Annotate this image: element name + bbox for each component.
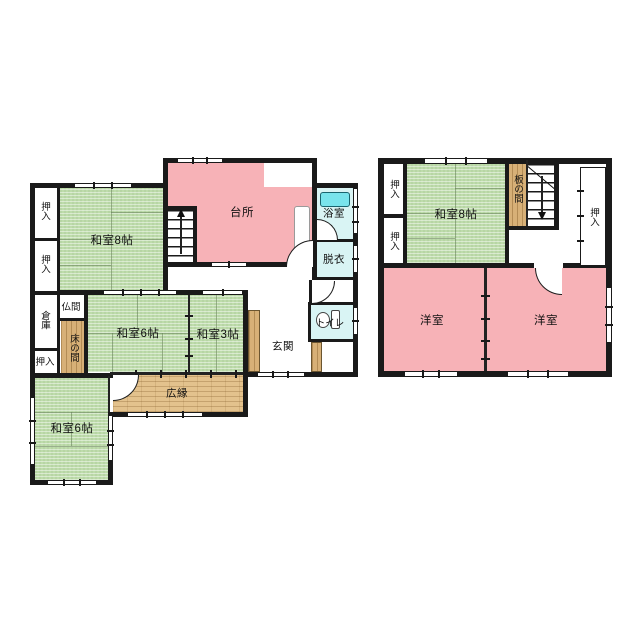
room-label-storage: 倉庫 — [37, 311, 51, 330]
room-label-western-right: 洋室 — [534, 312, 558, 328]
door-arc-washroom — [312, 281, 335, 304]
wall — [30, 291, 60, 295]
window-mark — [108, 416, 113, 460]
wall — [243, 290, 248, 417]
room-label-closet-2: 押入 — [37, 255, 51, 274]
window-mark — [405, 371, 457, 377]
wall — [163, 158, 168, 295]
window-mark — [508, 371, 568, 377]
kitchen-corner-nook — [264, 163, 312, 187]
room-label-washitsu6-center: 和室6帖 — [117, 325, 160, 341]
wall — [526, 160, 528, 226]
wall — [506, 226, 558, 230]
entrance-step-right — [311, 342, 322, 372]
wall — [554, 158, 559, 230]
wall — [57, 186, 60, 375]
window-mark — [75, 183, 131, 188]
floor-plan-canvas: 台所 浴室 脱衣 トイレ 玄関 和室8帖 和室6帖 和室3帖 和室6帖 広縁 仏… — [0, 0, 640, 640]
wall — [84, 293, 88, 375]
stairs-2f-arrow-line — [541, 176, 543, 212]
wall — [312, 183, 358, 188]
room-label-closet-3: 押入 — [35, 354, 54, 368]
room-label-closet-2f-2: 押入 — [386, 232, 400, 251]
window-mark — [606, 288, 612, 342]
wall — [308, 302, 311, 342]
wall — [30, 373, 113, 378]
room-label-closet-1: 押入 — [37, 202, 51, 221]
room-label-butsuma: 仏間 — [61, 299, 80, 313]
window-mark — [178, 158, 222, 163]
wall — [378, 263, 612, 268]
wall — [378, 158, 612, 164]
wall — [308, 339, 353, 342]
wall — [30, 238, 60, 241]
room-label-veranda: 広縁 — [166, 386, 188, 401]
wall — [58, 318, 85, 321]
stairs-1f-arrow-line — [180, 216, 182, 254]
room-label-closet-2f-3: 押入 — [586, 208, 600, 227]
room-label-washitsu8-1f: 和室8帖 — [91, 232, 134, 248]
room-label-closet-2f-1: 押入 — [386, 180, 400, 199]
room-label-toilet: トイレ — [316, 315, 345, 329]
wall — [193, 206, 197, 266]
stairs-1f-up-arrow — [177, 209, 185, 217]
wall — [378, 214, 407, 218]
room-label-itanoma: 板の間 — [510, 175, 524, 204]
room-label-bath: 浴室 — [323, 206, 345, 221]
wall — [505, 158, 509, 268]
room-label-entrance: 玄関 — [272, 339, 294, 354]
wall — [312, 277, 353, 280]
partition — [484, 268, 487, 371]
window-mark — [258, 372, 304, 377]
window-mark — [353, 189, 358, 233]
window-mark — [48, 480, 96, 485]
room-label-washitsu8-2f: 和室8帖 — [435, 206, 478, 222]
entrance-step-left — [248, 310, 260, 372]
window-mark — [425, 158, 487, 164]
room-label-kitchen: 台所 — [230, 204, 254, 220]
room-label-dressing: 脱衣 — [323, 252, 345, 267]
room-label-western-left: 洋室 — [420, 312, 444, 328]
room-label-washitsu6-south: 和室6帖 — [51, 420, 94, 436]
partition-fusuma — [188, 295, 190, 372]
wall — [108, 376, 110, 412]
stairs-2f-down-arrow — [538, 212, 546, 220]
wall — [30, 348, 60, 351]
window-mark — [30, 398, 35, 464]
room-label-tokonoma: 床の間 — [66, 334, 80, 363]
room-label-washitsu3: 和室3帖 — [197, 326, 240, 342]
